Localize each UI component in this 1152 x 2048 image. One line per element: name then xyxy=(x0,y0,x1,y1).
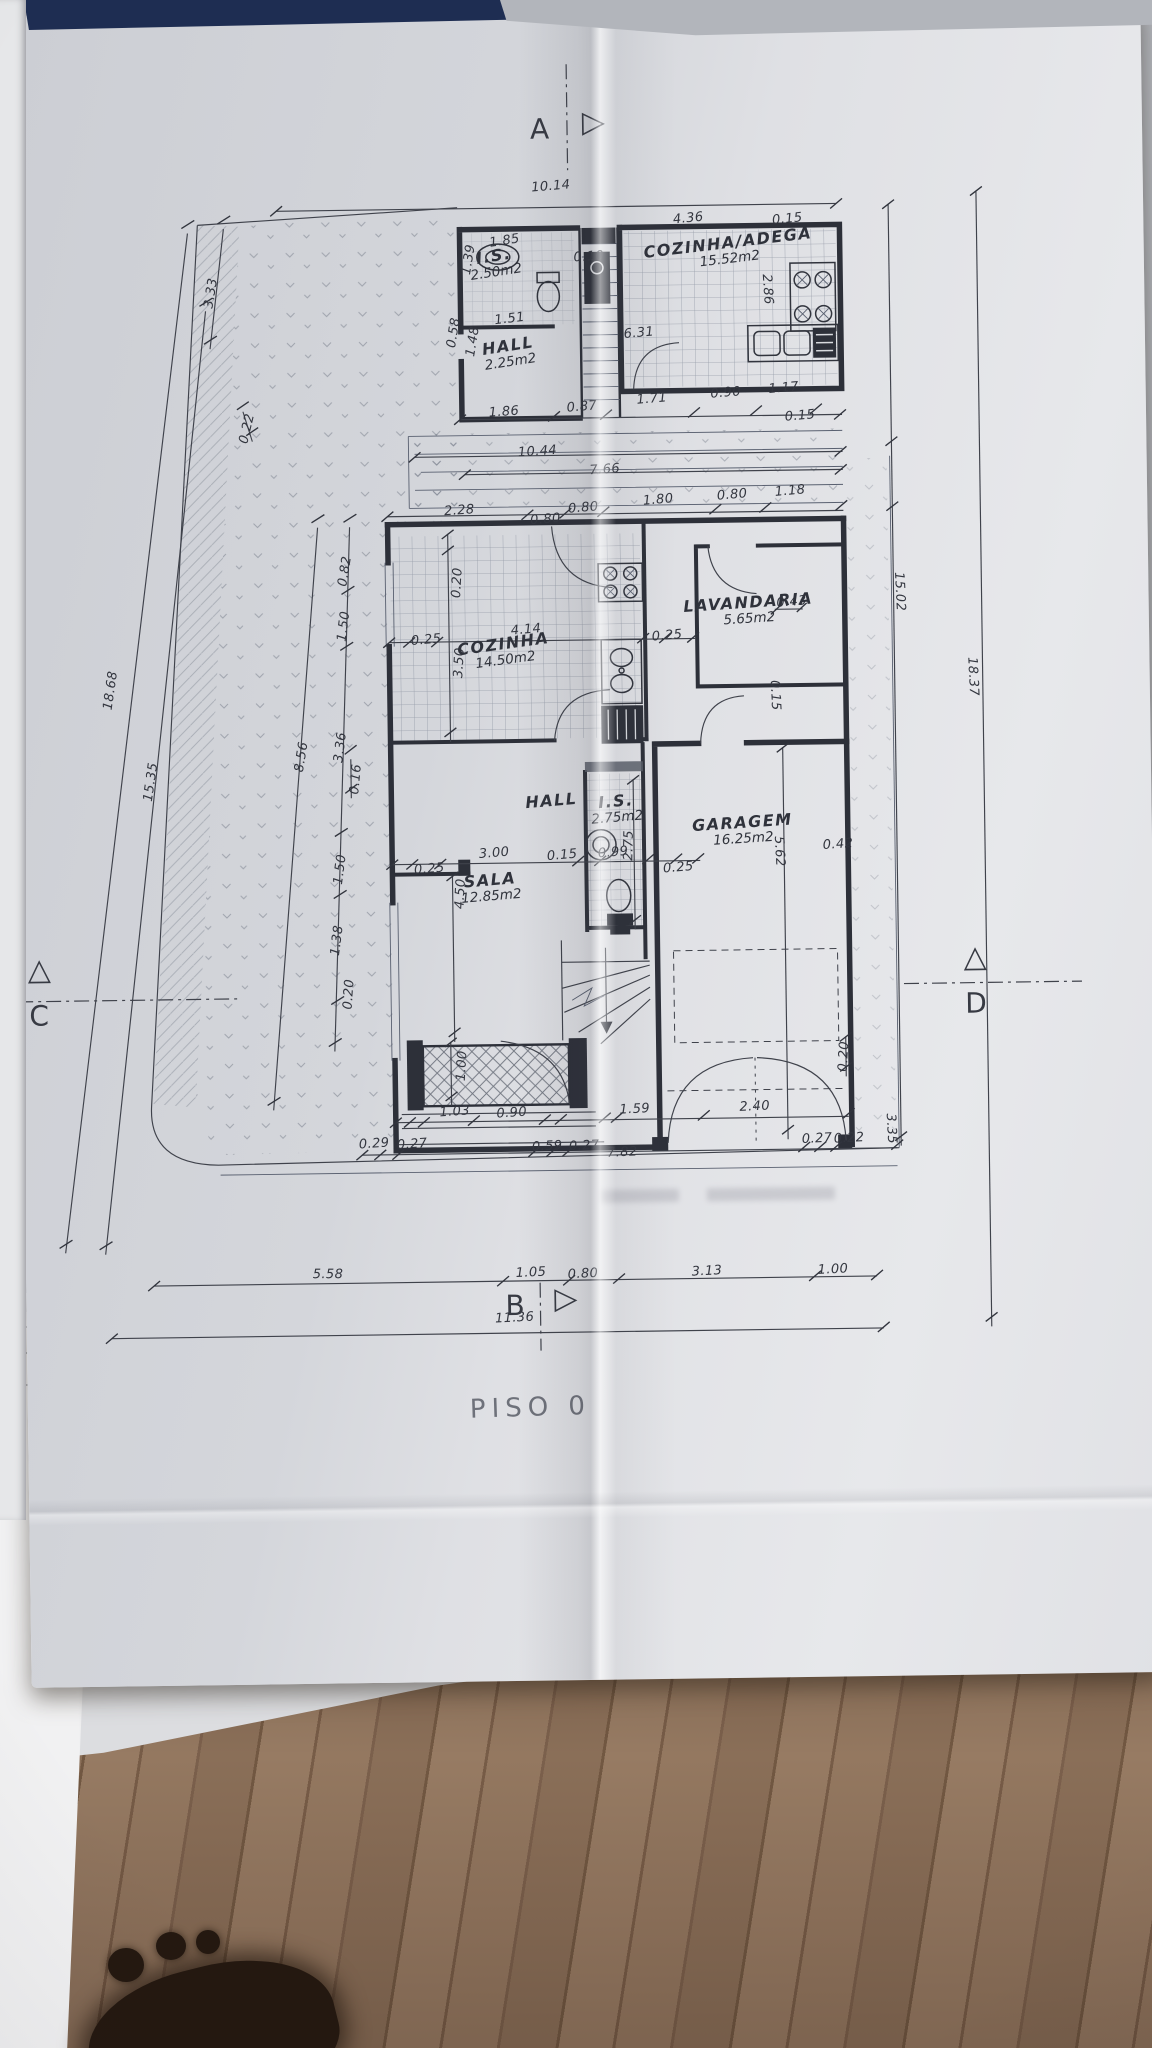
bleed-through-word xyxy=(707,1187,835,1202)
adjacent-page-edge xyxy=(0,0,26,1520)
section-marker-A: A xyxy=(530,112,550,145)
bleed-through-word xyxy=(601,1189,679,1203)
bleed-through-stamp xyxy=(601,1182,861,1208)
section-marker-C: C xyxy=(29,1000,49,1033)
section-marker-triangle-D: △ xyxy=(963,942,986,972)
floor-plan-drawing: 10.144.360.150.106.312.861.391.851.510.5… xyxy=(8,0,1152,1668)
section-marker-D: D xyxy=(965,986,987,1019)
foot-silhouette xyxy=(78,1938,358,2048)
toe-shape xyxy=(108,1948,144,1982)
plan-title: PISO 0 xyxy=(469,1391,591,1425)
section-marker-B: B xyxy=(505,1289,525,1322)
toe-shape xyxy=(156,1932,186,1960)
section-marker-triangle-B: ▷ xyxy=(554,1284,577,1314)
section-marker-triangle-C: △ xyxy=(28,955,51,985)
section-marker-triangle-A: ▷ xyxy=(582,108,605,138)
toe-shape xyxy=(196,1930,220,1954)
photo-of-floor-plan: 10.144.360.150.106.312.861.391.851.510.5… xyxy=(0,0,1152,2048)
floor-plan-page: 10.144.360.150.106.312.861.391.851.510.5… xyxy=(8,0,1152,1688)
